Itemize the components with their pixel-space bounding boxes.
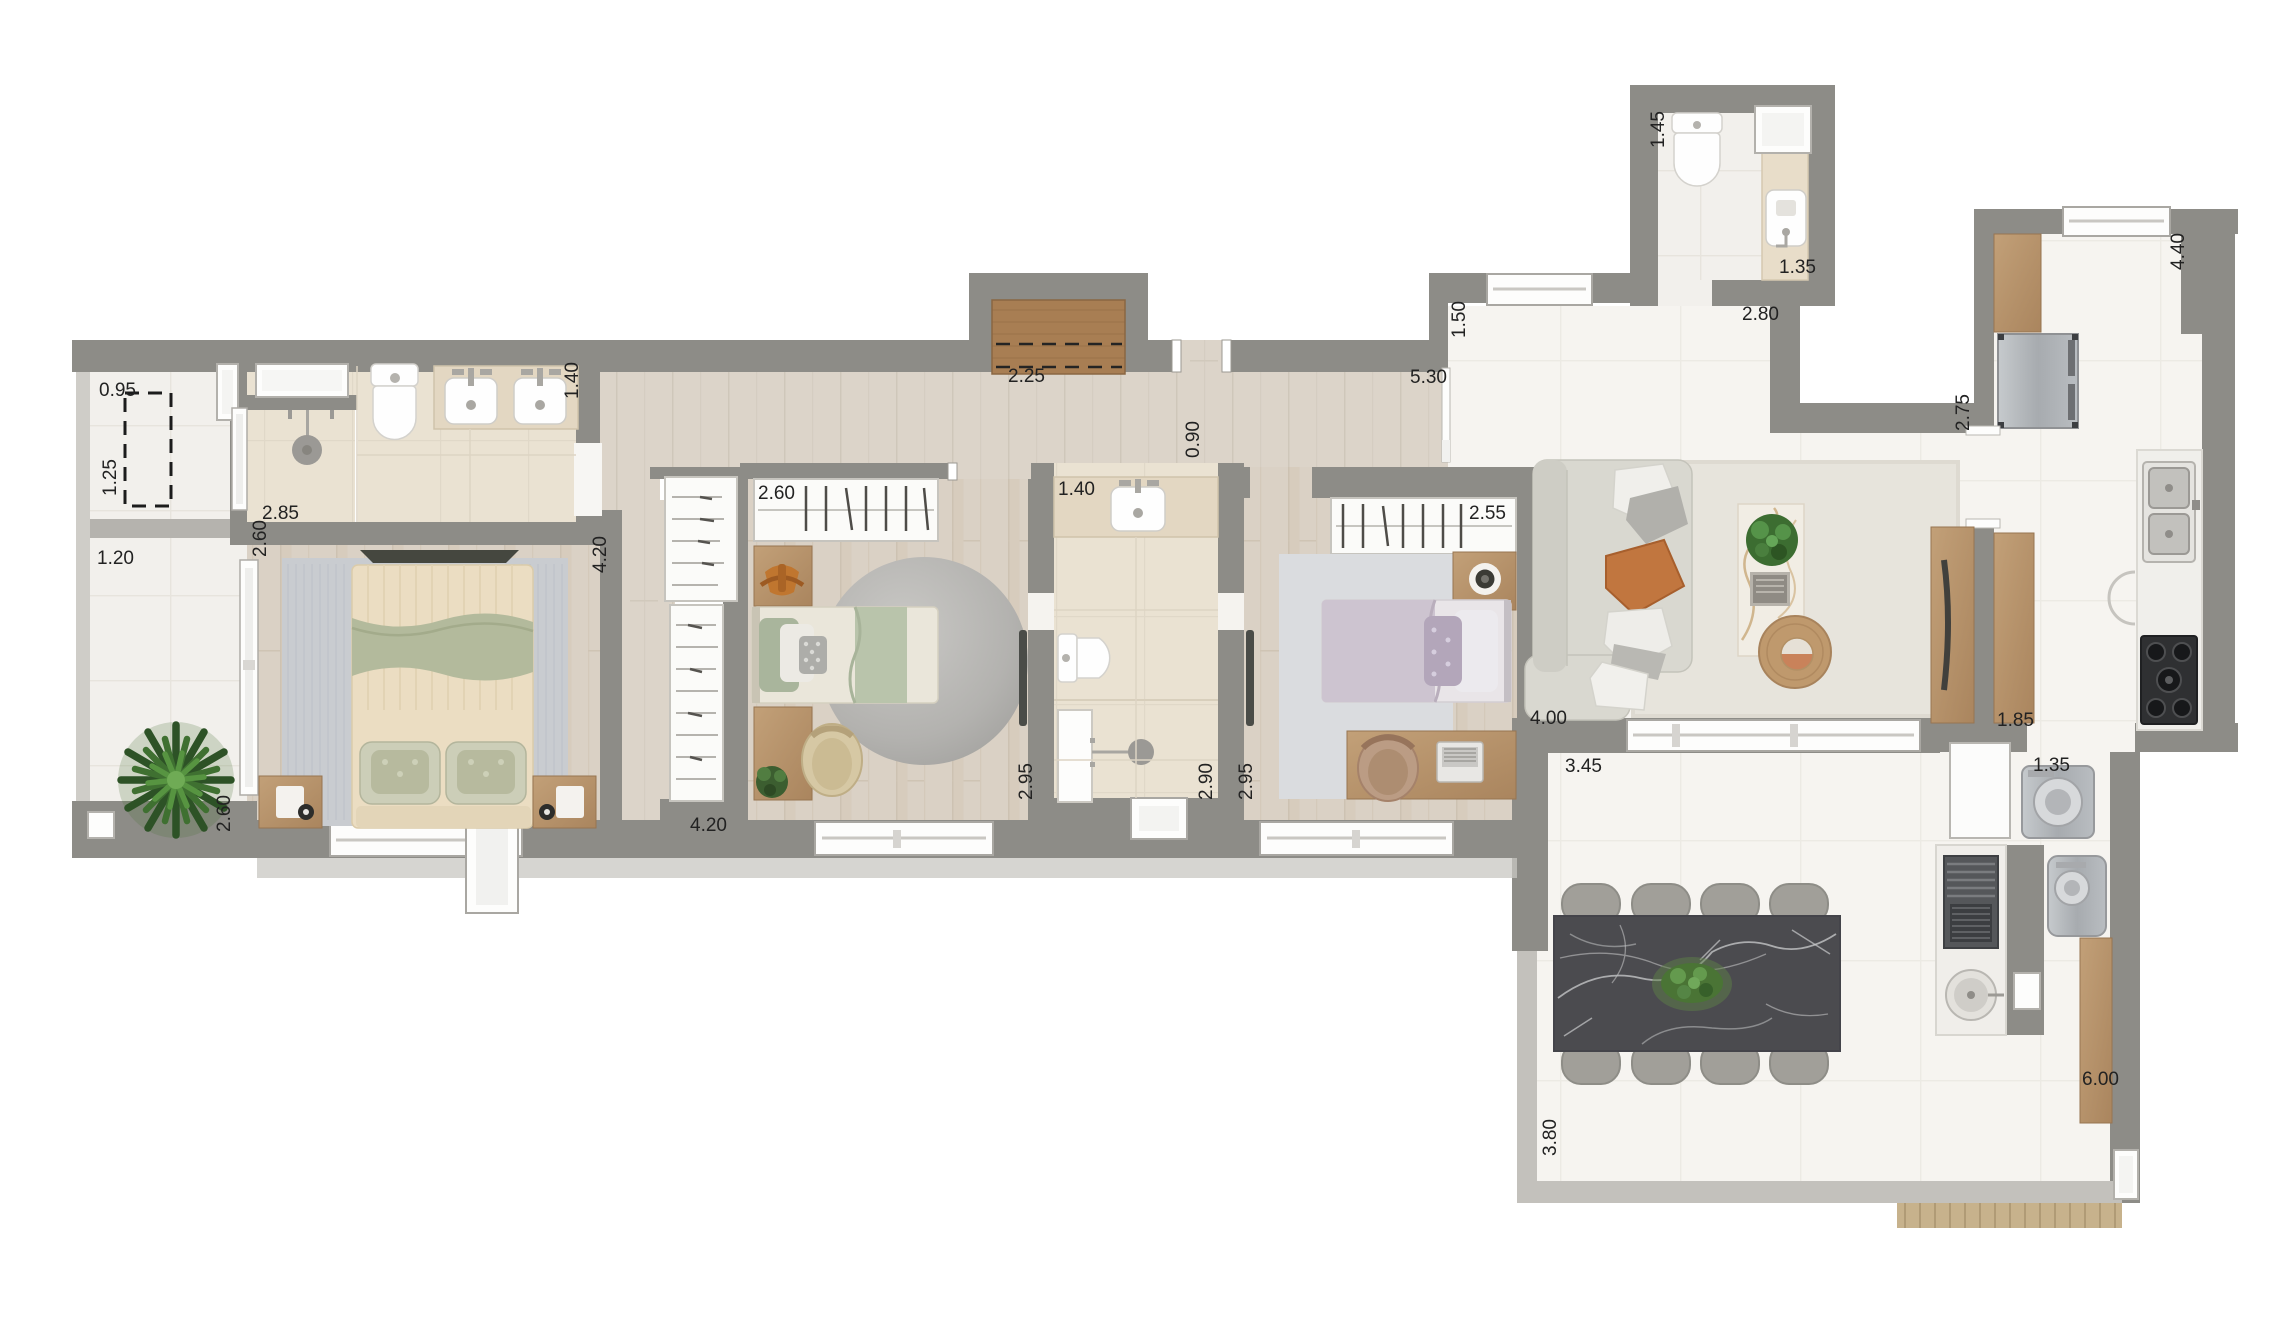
svg-text:2.95: 2.95 (1016, 763, 1037, 800)
svg-text:1.40: 1.40 (1058, 479, 1095, 500)
svg-text:1.25: 1.25 (100, 459, 121, 496)
svg-text:1.85: 1.85 (1997, 710, 2034, 731)
svg-text:2.25: 2.25 (1008, 366, 1045, 387)
svg-text:1.35: 1.35 (1779, 257, 1816, 278)
svg-text:3.45: 3.45 (1565, 756, 1602, 777)
svg-text:2.90: 2.90 (1196, 763, 1217, 800)
svg-text:1.35: 1.35 (2033, 755, 2070, 776)
svg-text:1.50: 1.50 (1449, 301, 1470, 338)
svg-text:2.55: 2.55 (1469, 503, 1506, 524)
svg-text:0.90: 0.90 (1183, 421, 1204, 458)
svg-text:4.00: 4.00 (1530, 708, 1567, 729)
svg-text:4.20: 4.20 (690, 815, 727, 836)
svg-text:2.60: 2.60 (758, 483, 795, 504)
svg-text:2.75: 2.75 (1953, 394, 1974, 431)
svg-text:3.80: 3.80 (1540, 1119, 1561, 1156)
svg-text:6.00: 6.00 (2082, 1069, 2119, 1090)
svg-text:1.45: 1.45 (1648, 111, 1669, 148)
svg-text:2.60: 2.60 (250, 520, 271, 557)
svg-text:0.95: 0.95 (99, 380, 136, 401)
svg-text:1.40: 1.40 (562, 362, 583, 399)
svg-text:2.95: 2.95 (1236, 763, 1257, 800)
svg-text:4.40: 4.40 (2168, 233, 2189, 270)
svg-text:2.80: 2.80 (1742, 304, 1779, 325)
svg-text:2.60: 2.60 (214, 795, 235, 832)
svg-text:4.20: 4.20 (590, 536, 611, 573)
svg-text:5.30: 5.30 (1410, 367, 1447, 388)
svg-text:1.20: 1.20 (97, 548, 134, 569)
